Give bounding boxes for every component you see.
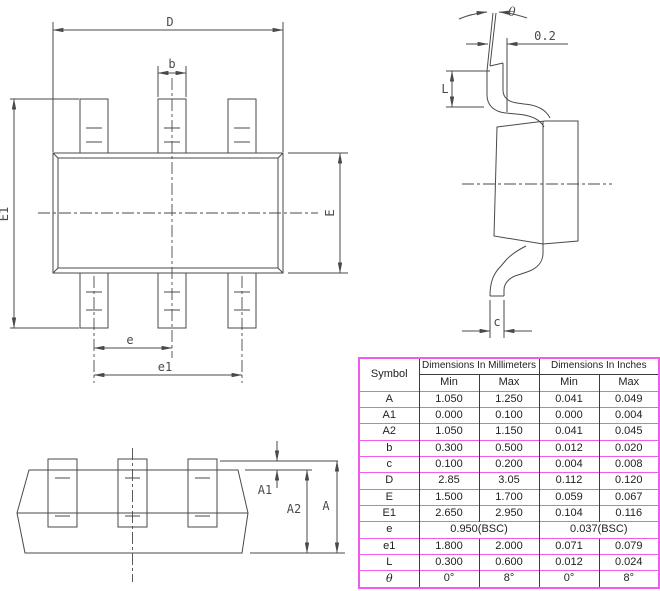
- table-row-L: L 0.300 0.600 0.012 0.024: [359, 555, 659, 571]
- lead-thickness-label: c: [493, 315, 500, 329]
- a2-label: A2: [287, 502, 301, 516]
- bottom-pins: [80, 273, 256, 328]
- table-row-c: c 0.100 0.200 0.004 0.008: [359, 457, 659, 473]
- top-pins: [80, 99, 256, 153]
- bottom-pin-ticks: [86, 292, 250, 310]
- cell-symbol: A1: [359, 408, 419, 424]
- e1-pitch-label: e1: [158, 360, 172, 374]
- e-width-label: E: [323, 209, 337, 216]
- package-top-view: D b E1 E e e1: [0, 15, 348, 383]
- header-in-group: Dimensions In Inches: [539, 358, 659, 375]
- table-row-e1: e1 1.800 2.000 0.071 0.079: [359, 538, 659, 554]
- e1-width-label: E1: [0, 207, 11, 221]
- a1-extension-lines: [220, 461, 338, 470]
- e-pitch-label: e: [126, 333, 133, 347]
- cell-e-in-bsc: 0.037(BSC): [539, 522, 659, 538]
- table-row-E1: E1 2.650 2.950 0.104 0.116: [359, 506, 659, 522]
- package-front-view: A1 A2 A: [17, 441, 345, 582]
- cell-symbol: A2: [359, 424, 419, 440]
- table-row-e: e 0.950(BSC) 0.037(BSC): [359, 522, 659, 538]
- table-row-A: A 1.050 1.250 0.041 0.049: [359, 391, 659, 407]
- foot-length-label: L: [441, 82, 448, 96]
- cell-symbol: L: [359, 555, 419, 571]
- lead-tip-lines: [487, 13, 503, 71]
- header-mm-min: Min: [419, 375, 479, 391]
- cell-symbol: c: [359, 457, 419, 473]
- cell-symbol: θ: [359, 571, 419, 588]
- table-row-b: b 0.300 0.500 0.012 0.020: [359, 440, 659, 456]
- foot-length-extension-lines: [446, 71, 490, 107]
- header-in-max: Max: [599, 375, 659, 391]
- d-label: D: [166, 15, 173, 29]
- table-header-row-1: Symbol Dimensions In Millimeters Dimensi…: [359, 358, 659, 375]
- top-pin-ticks: [86, 128, 250, 142]
- header-mm-group: Dimensions In Millimeters: [419, 358, 539, 375]
- lower-lead-outer-curve: [490, 246, 526, 296]
- a-label: A: [322, 499, 330, 513]
- cell-e-mm-bsc: 0.950(BSC): [419, 522, 539, 538]
- cell-symbol: e1: [359, 538, 419, 554]
- b-label: b: [168, 57, 175, 71]
- package-outline-sheet: D b E1 E e e1 θ: [0, 0, 660, 591]
- dimensions-table: Symbol Dimensions In Millimeters Dimensi…: [358, 357, 660, 589]
- table-row-E: E 1.500 1.700 0.059 0.067: [359, 489, 659, 505]
- header-mm-max: Max: [479, 375, 539, 391]
- header-symbol: Symbol: [359, 358, 419, 391]
- cell-symbol: e: [359, 522, 419, 538]
- cell-symbol: b: [359, 440, 419, 456]
- package-side-view: θ 0.2 L c: [441, 5, 612, 338]
- theta-label: θ: [508, 5, 516, 19]
- tip-offset-label: 0.2: [534, 29, 556, 43]
- cell-symbol: E: [359, 489, 419, 505]
- lead-foot-edges: [487, 63, 503, 95]
- lower-lead-inner-curve: [504, 244, 543, 296]
- cell-symbol: E1: [359, 506, 419, 522]
- table-row-A1: A1 0.000 0.100 0.000 0.004: [359, 408, 659, 424]
- theta-arc-left: [459, 12, 487, 19]
- table-row-theta: θ 0° 8° 0° 8°: [359, 571, 659, 588]
- a1-label: A1: [258, 483, 272, 497]
- header-in-min: Min: [539, 375, 599, 391]
- cell-symbol: A: [359, 391, 419, 407]
- side-body-outline: [494, 121, 578, 244]
- cell-symbol: D: [359, 473, 419, 489]
- table-row-A2: A2 1.050 1.150 0.041 0.045: [359, 424, 659, 440]
- d-extension-lines: [53, 22, 283, 152]
- e1-width-extension-lines: [10, 99, 79, 328]
- table-row-D: D 2.85 3.05 0.112 0.120: [359, 473, 659, 489]
